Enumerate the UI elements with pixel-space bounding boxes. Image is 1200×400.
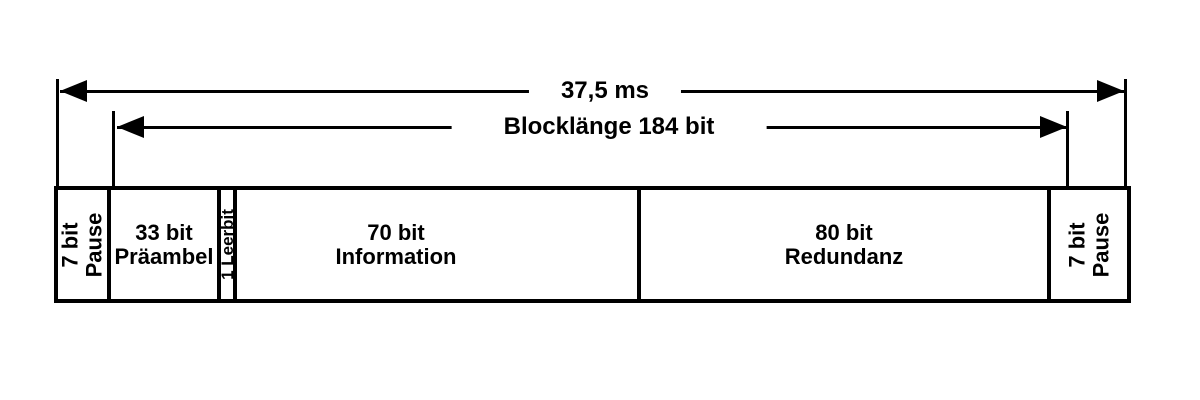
segment-redundancy-label: 80 bit Redundanz [785, 221, 904, 269]
segment-label-line: Pause [1089, 212, 1113, 277]
block-length-label: Blocklänge 184 bit [452, 114, 767, 140]
extension-line-block-right [1066, 111, 1069, 186]
segment-label-line: 70 bit [336, 221, 457, 245]
segment-preamble-label: 33 bit Präambel [114, 221, 213, 269]
segment-label-line: 7 bit [59, 212, 83, 277]
segment-redundancy: 80 bit Redundanz [641, 190, 1051, 299]
segment-leerbit-label: 1 Leerbit [219, 209, 236, 280]
segment-pause-left: 7 bit Pause [58, 190, 111, 299]
arrowhead-right-icon [1040, 116, 1067, 138]
total-duration-label: 37,5 ms [529, 78, 681, 104]
segment-information: 70 bit Information [237, 190, 641, 299]
segment-pause-right: 7 bit Pause [1051, 190, 1127, 299]
frame-bar: 7 bit Pause 33 bit Präambel 1 Leerbit 70… [54, 186, 1131, 303]
segment-pause-left-label: 7 bit Pause [59, 212, 107, 277]
segment-label-line: 33 bit [114, 221, 213, 245]
arrowhead-right-icon [1097, 80, 1124, 102]
segment-leerbit: 1 Leerbit [221, 190, 237, 299]
segment-information-label: 70 bit Information [336, 221, 457, 269]
segment-label-line: Information [336, 245, 457, 269]
segment-label-line: Redundanz [785, 245, 904, 269]
segment-preamble: 33 bit Präambel [111, 190, 221, 299]
extension-line-bar-left [56, 79, 59, 186]
segment-label-line: 80 bit [785, 221, 904, 245]
segment-label-line: Pause [83, 212, 107, 277]
segment-pause-right-label: 7 bit Pause [1065, 212, 1113, 277]
extension-line-block-left [112, 111, 115, 186]
extension-line-bar-right [1124, 79, 1127, 186]
arrowhead-left-icon [60, 80, 87, 102]
segment-label-line: 7 bit [1065, 212, 1089, 277]
segment-label-line: Präambel [114, 245, 213, 269]
arrowhead-left-icon [117, 116, 144, 138]
frame-structure-diagram: 37,5 ms Blocklänge 184 bit 7 bit Pause 3… [0, 0, 1200, 400]
